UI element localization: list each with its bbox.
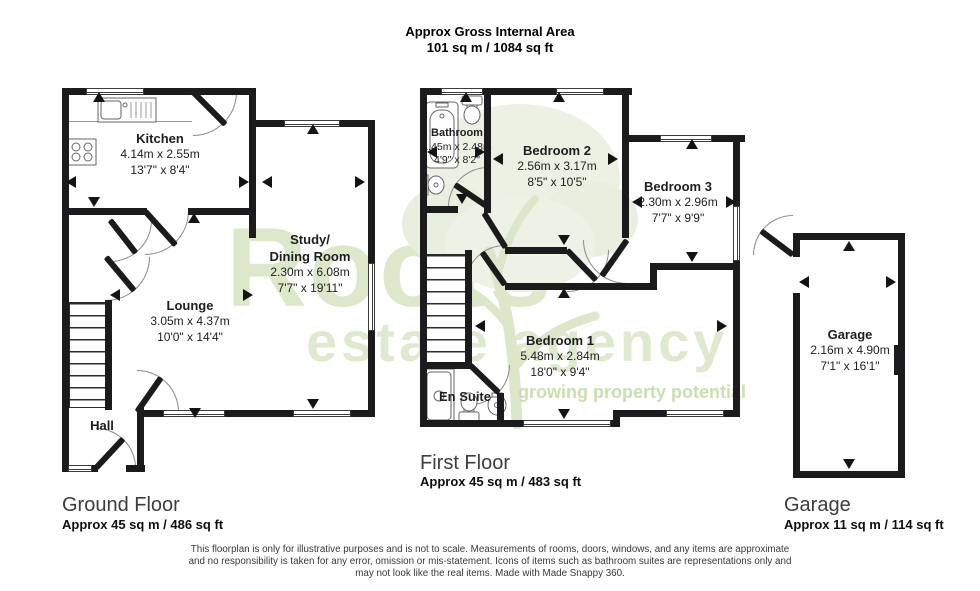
- measure-arrow: [307, 124, 319, 134]
- garage-title: Garage: [784, 494, 851, 517]
- garage-metric: 2.16m x 4.90m: [780, 343, 920, 359]
- wall: [465, 250, 472, 369]
- measure-arrow: [843, 241, 855, 251]
- kitchen-name: Kitchen: [90, 130, 230, 147]
- kitchen-metric: 4.14m x 2.55m: [90, 147, 230, 163]
- measure-arrow: [558, 409, 570, 419]
- measure-arrow: [686, 252, 698, 262]
- wall: [650, 263, 740, 270]
- window: [293, 410, 351, 417]
- lounge-name: Lounge: [120, 297, 260, 314]
- measure-arrow: [66, 176, 76, 188]
- study-dining-label: Study/ Dining Room 2.30m x 6.08m 7'7" x …: [240, 231, 380, 297]
- study-name: Study/: [240, 231, 380, 248]
- wall: [62, 208, 147, 215]
- kitchen-label: Kitchen 4.14m x 2.55m 13'7" x 8'4": [90, 130, 230, 179]
- wall: [137, 407, 144, 472]
- bedroom2-name: Bedroom 2: [487, 142, 627, 159]
- ensuite-label: En Suite: [430, 388, 500, 405]
- garage-area: Approx 11 sq m / 114 sq ft: [784, 517, 944, 532]
- measure-arrow: [558, 288, 570, 298]
- measure-arrow: [886, 276, 896, 288]
- kitchen-sink-icon: [97, 97, 157, 123]
- measure-arrow: [843, 459, 855, 469]
- window: [666, 410, 724, 417]
- measure-arrow: [189, 408, 201, 418]
- measure-arrow: [717, 320, 727, 332]
- garage-name: Garage: [780, 326, 920, 343]
- wall: [505, 247, 567, 254]
- measure-arrow: [239, 176, 249, 188]
- bedroom3-name: Bedroom 3: [608, 178, 748, 195]
- measure-arrow: [188, 213, 200, 223]
- measure-arrow: [88, 197, 100, 207]
- disclaimer-line3: may not look like the real items. Made w…: [120, 568, 860, 580]
- lounge-metric: 3.05m x 4.37m: [120, 314, 260, 330]
- measure-arrow: [307, 399, 319, 409]
- study-metric: 2.30m x 6.08m: [240, 265, 380, 281]
- bedroom2-imperial: 8'5" x 10'5": [487, 175, 627, 191]
- bedroom3-imperial: 7'7" x 9'9": [608, 211, 748, 227]
- ground-floor-stairs: [69, 302, 106, 408]
- bathroom-metric: 1.45m x 2.48m: [417, 141, 497, 155]
- lounge-imperial: 10'0" x 14'4": [120, 330, 260, 346]
- bedroom1-label: Bedroom 1 5.48m x 2.84m 18'0" x 9'4": [490, 332, 630, 381]
- bathroom-label: Bathroom 1.45m x 2.48m 4'9" x 8'2": [417, 126, 497, 168]
- wall: [793, 233, 905, 240]
- lounge-label: Lounge 3.05m x 4.37m 10'0" x 14'4": [120, 297, 260, 346]
- first-floor-title: First Floor: [420, 452, 510, 475]
- first-floor-area: Approx 45 sq m / 483 sq ft: [420, 474, 581, 489]
- header-line1: Approx Gross Internal Area: [340, 24, 640, 40]
- measure-arrow: [475, 320, 485, 332]
- header-line2: 101 sq m / 1084 sq ft: [340, 40, 640, 56]
- bedroom2-metric: 2.56m x 3.17m: [487, 159, 627, 175]
- bedroom2-label: Bedroom 2 2.56m x 3.17m 8'5" x 10'5": [487, 142, 627, 191]
- measure-arrow: [456, 194, 468, 204]
- study-imperial: 7'7" x 19'11": [240, 281, 380, 297]
- bedroom3-label: Bedroom 3 2.30m x 2.96m 7'7" x 9'9": [608, 178, 748, 227]
- wall: [420, 206, 458, 213]
- measure-arrow: [110, 289, 120, 301]
- watermark-tagline: growing property potential: [518, 383, 746, 401]
- wall: [249, 88, 256, 238]
- measure-arrow: [553, 92, 565, 102]
- floorplan-canvas: Roots estate agency growing property pot…: [0, 0, 980, 591]
- bathroom-name: Bathroom: [417, 126, 497, 141]
- study-name2: Dining Room: [240, 248, 380, 265]
- disclaimer-line1: This floorplan is only for illustrative …: [120, 544, 860, 556]
- window: [523, 420, 611, 427]
- hall-label: Hall: [72, 417, 132, 434]
- measure-arrow: [558, 235, 570, 245]
- wall: [793, 293, 800, 478]
- measure-arrow: [93, 92, 105, 102]
- wall: [793, 471, 905, 478]
- bedroom1-metric: 5.48m x 2.84m: [490, 349, 630, 365]
- measure-arrow: [799, 276, 809, 288]
- wall: [105, 300, 112, 410]
- wall: [650, 263, 657, 290]
- bathroom-imperial: 4'9" x 8'2": [417, 154, 497, 168]
- bedroom3-metric: 2.30m x 2.96m: [608, 195, 748, 211]
- page-title: Approx Gross Internal Area 101 sq m / 10…: [340, 24, 640, 57]
- first-floor-stairs: [424, 254, 466, 364]
- garage-room-label: Garage 2.16m x 4.90m 7'1" x 16'1": [780, 326, 920, 375]
- measure-arrow: [355, 176, 365, 188]
- window: [68, 465, 92, 472]
- measure-arrow: [460, 92, 472, 102]
- hall-name: Hall: [72, 417, 132, 434]
- garage-imperial: 7'1" x 16'1": [780, 359, 920, 375]
- ground-floor-area: Approx 45 sq m / 486 sq ft: [62, 517, 223, 532]
- disclaimer-line2: and no responsibility is taken for any e…: [120, 556, 860, 568]
- wall: [62, 88, 69, 472]
- wall: [126, 465, 145, 472]
- measure-arrow: [686, 139, 698, 149]
- kitchen-imperial: 13'7" x 8'4": [90, 163, 230, 179]
- disclaimer: This floorplan is only for illustrative …: [120, 544, 860, 580]
- bedroom1-name: Bedroom 1: [490, 332, 630, 349]
- measure-arrow: [262, 176, 272, 188]
- ensuite-name: En Suite: [430, 388, 500, 405]
- wall: [505, 283, 657, 290]
- ground-floor-title: Ground Floor: [62, 494, 180, 517]
- bedroom1-imperial: 18'0" x 9'4": [490, 365, 630, 381]
